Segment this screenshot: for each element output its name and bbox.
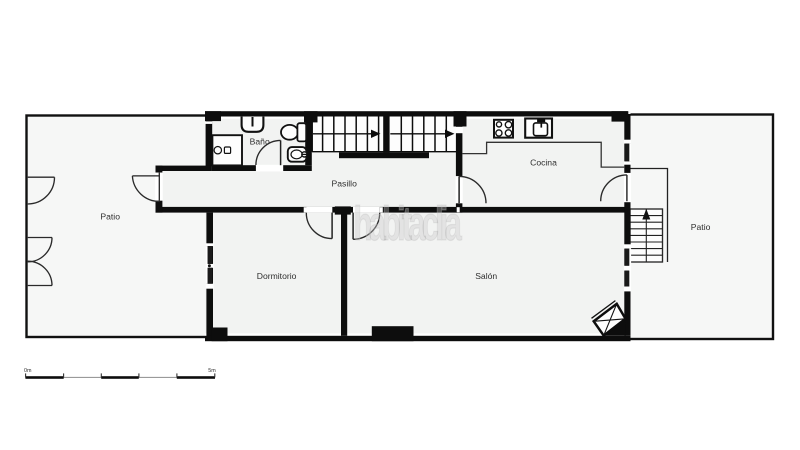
svg-text:Baño: Baño: [250, 137, 270, 147]
svg-text:Patio: Patio: [100, 211, 120, 221]
svg-text:Dormitorio: Dormitorio: [257, 271, 297, 281]
svg-text:Cocina: Cocina: [530, 158, 557, 168]
svg-text:Pasillo: Pasillo: [332, 179, 358, 189]
svg-text:Salón: Salón: [475, 271, 497, 281]
svg-text:5m: 5m: [208, 368, 216, 374]
svg-text:habitaclia: habitaclia: [354, 196, 463, 251]
svg-text:0m: 0m: [24, 368, 32, 374]
svg-text:Patio: Patio: [691, 222, 711, 232]
